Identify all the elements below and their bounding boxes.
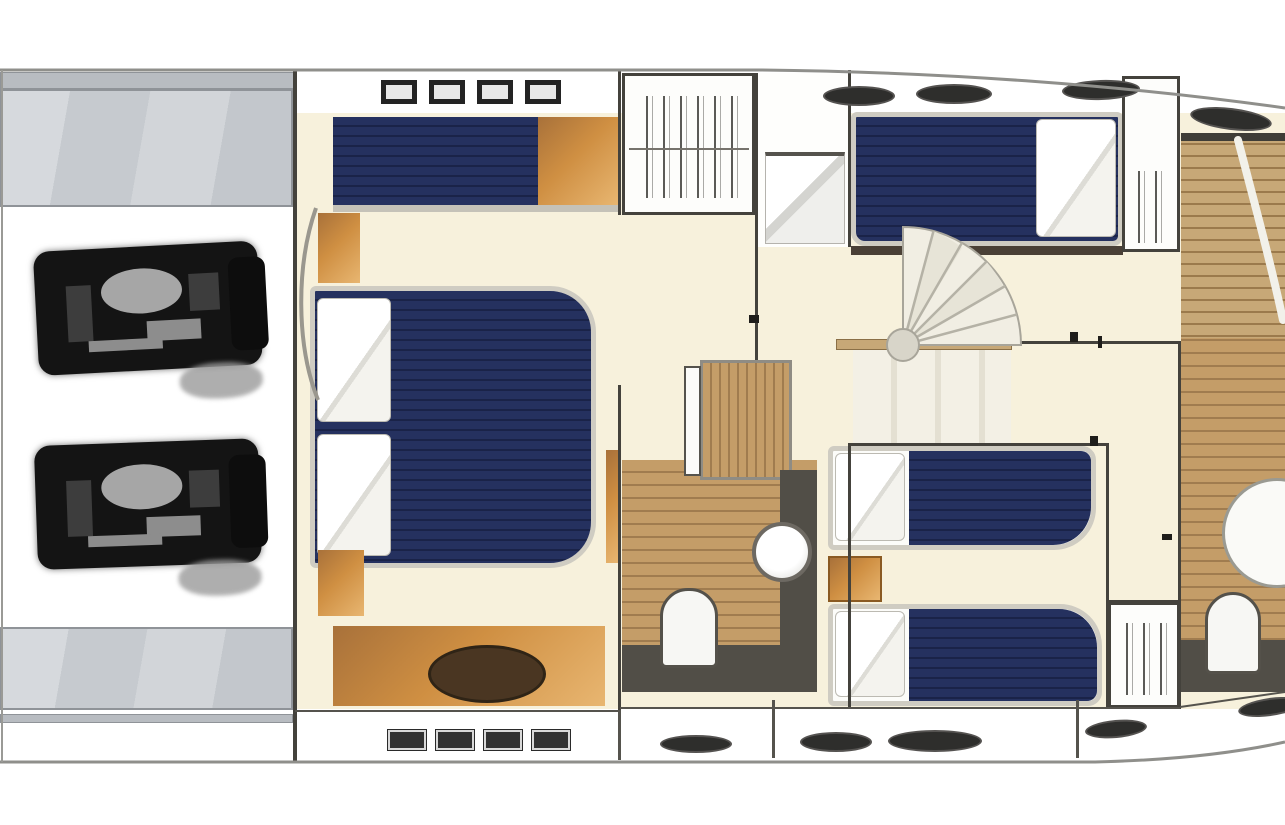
hanging-locker-vip	[1122, 76, 1180, 252]
engine-exhaust	[178, 558, 263, 597]
vip-bed-base	[851, 246, 1123, 255]
master-sofa-sill	[333, 205, 618, 212]
wall	[848, 443, 851, 709]
master-nightstand-aft	[318, 213, 360, 283]
hull-window	[484, 730, 522, 750]
hull-window	[381, 80, 417, 104]
hull-window	[477, 80, 513, 104]
door-vip	[1070, 332, 1078, 342]
vip-pillow	[1036, 119, 1116, 237]
stairs-top-edge	[1181, 133, 1285, 141]
master-pillow	[317, 434, 391, 556]
master-sofa	[333, 117, 538, 205]
wall	[618, 385, 621, 710]
staircase-lower-treads	[853, 350, 1011, 443]
porthole	[660, 735, 732, 753]
companionway-stairs	[1181, 133, 1285, 338]
twin-bed-fwd	[828, 604, 1102, 706]
wall-tick	[772, 700, 775, 758]
hanging-locker-lobby	[622, 73, 755, 215]
twin-nightstand	[828, 556, 882, 602]
hull-window	[429, 80, 465, 104]
starboard-engine	[26, 432, 277, 581]
engine-detail	[66, 480, 93, 537]
door-vip-jamb	[1098, 336, 1102, 348]
toilet-midship	[660, 588, 718, 668]
shower-door	[684, 366, 701, 476]
wall-tick	[618, 710, 621, 760]
twin-pillow	[835, 453, 905, 541]
twin-pillow	[835, 611, 905, 697]
engine-gearbox	[228, 454, 268, 548]
porthole	[916, 84, 992, 104]
wall	[618, 70, 621, 215]
wall	[1178, 341, 1181, 709]
twin-duvet	[909, 451, 1091, 545]
hanging-locker-forward	[1108, 602, 1180, 708]
porthole	[823, 86, 895, 106]
shower-midship	[700, 360, 792, 480]
wall-tick	[1076, 700, 1079, 758]
engine-detail	[189, 470, 220, 507]
closet-rod	[629, 148, 749, 150]
wall-corridor	[1005, 341, 1180, 344]
engine-detail	[66, 285, 93, 342]
lobby-seat	[765, 152, 845, 244]
swim-platform-bottom	[0, 627, 293, 710]
porthole	[800, 732, 872, 752]
yacht-floor-plan	[0, 0, 1285, 825]
wall-hull-bottom	[295, 710, 620, 712]
washbasin-midship	[752, 522, 812, 582]
hanging-clothes-icon	[1121, 623, 1169, 695]
engine-gearbox	[227, 256, 269, 350]
staircase-handrail	[836, 339, 1012, 350]
master-cabinet	[538, 117, 618, 205]
shower-forward	[1222, 478, 1285, 588]
hanging-clothes-icon	[641, 96, 741, 198]
wall-hull-bottom	[620, 707, 1180, 709]
hull-window	[388, 730, 426, 750]
porthole	[888, 730, 982, 752]
bathroom-midship-counter-fwd	[622, 645, 817, 692]
swim-platform-top	[0, 89, 293, 207]
door-master	[749, 315, 759, 323]
swim-platform-step-top	[0, 72, 294, 89]
hull-window	[525, 80, 561, 104]
swim-platform-step-bottom	[0, 714, 293, 723]
wall	[1108, 600, 1180, 603]
wall-twin-cabin-top	[848, 443, 1108, 446]
toilet-forward	[1205, 592, 1261, 674]
door-twin	[1090, 436, 1098, 446]
engine-detail	[189, 273, 220, 311]
master-nightstand-fwd	[318, 550, 364, 616]
vip-bed	[851, 112, 1123, 246]
twin-duvet	[909, 609, 1097, 701]
twin-bed-aft	[828, 446, 1096, 550]
door-forward-bath	[1162, 534, 1172, 540]
master-pillow	[317, 298, 391, 422]
hanging-clothes-icon	[1133, 171, 1171, 243]
master-tv-console	[428, 645, 546, 703]
hull-window	[436, 730, 474, 750]
port-engine	[25, 234, 278, 387]
bulkhead-engine-room	[293, 70, 297, 762]
hull-window	[532, 730, 570, 750]
wall	[1106, 443, 1109, 709]
